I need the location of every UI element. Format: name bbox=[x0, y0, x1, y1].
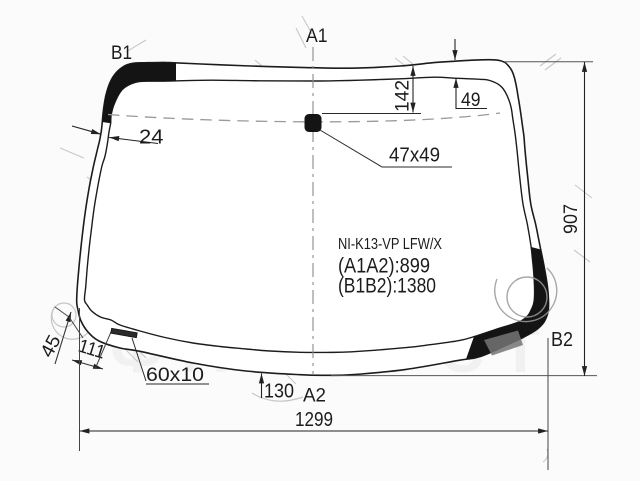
svg-text:A1: A1 bbox=[306, 25, 328, 47]
svg-text:49: 49 bbox=[461, 90, 481, 111]
svg-text:B1: B1 bbox=[111, 43, 132, 64]
svg-text:907: 907 bbox=[561, 204, 582, 234]
svg-text:130: 130 bbox=[264, 381, 294, 403]
svg-text:NI-K13-VP LFW/X: NI-K13-VP LFW/X bbox=[338, 236, 443, 253]
svg-text:B2: B2 bbox=[551, 329, 573, 351]
svg-text:(B1B2):1380: (B1B2):1380 bbox=[338, 275, 436, 298]
svg-text:47x49: 47x49 bbox=[389, 145, 440, 167]
svg-text:60x10: 60x10 bbox=[146, 365, 204, 386]
svg-text:A2: A2 bbox=[303, 385, 326, 407]
svg-text:1299: 1299 bbox=[295, 409, 333, 431]
svg-text:142: 142 bbox=[393, 80, 414, 112]
svg-text:24: 24 bbox=[139, 126, 164, 149]
